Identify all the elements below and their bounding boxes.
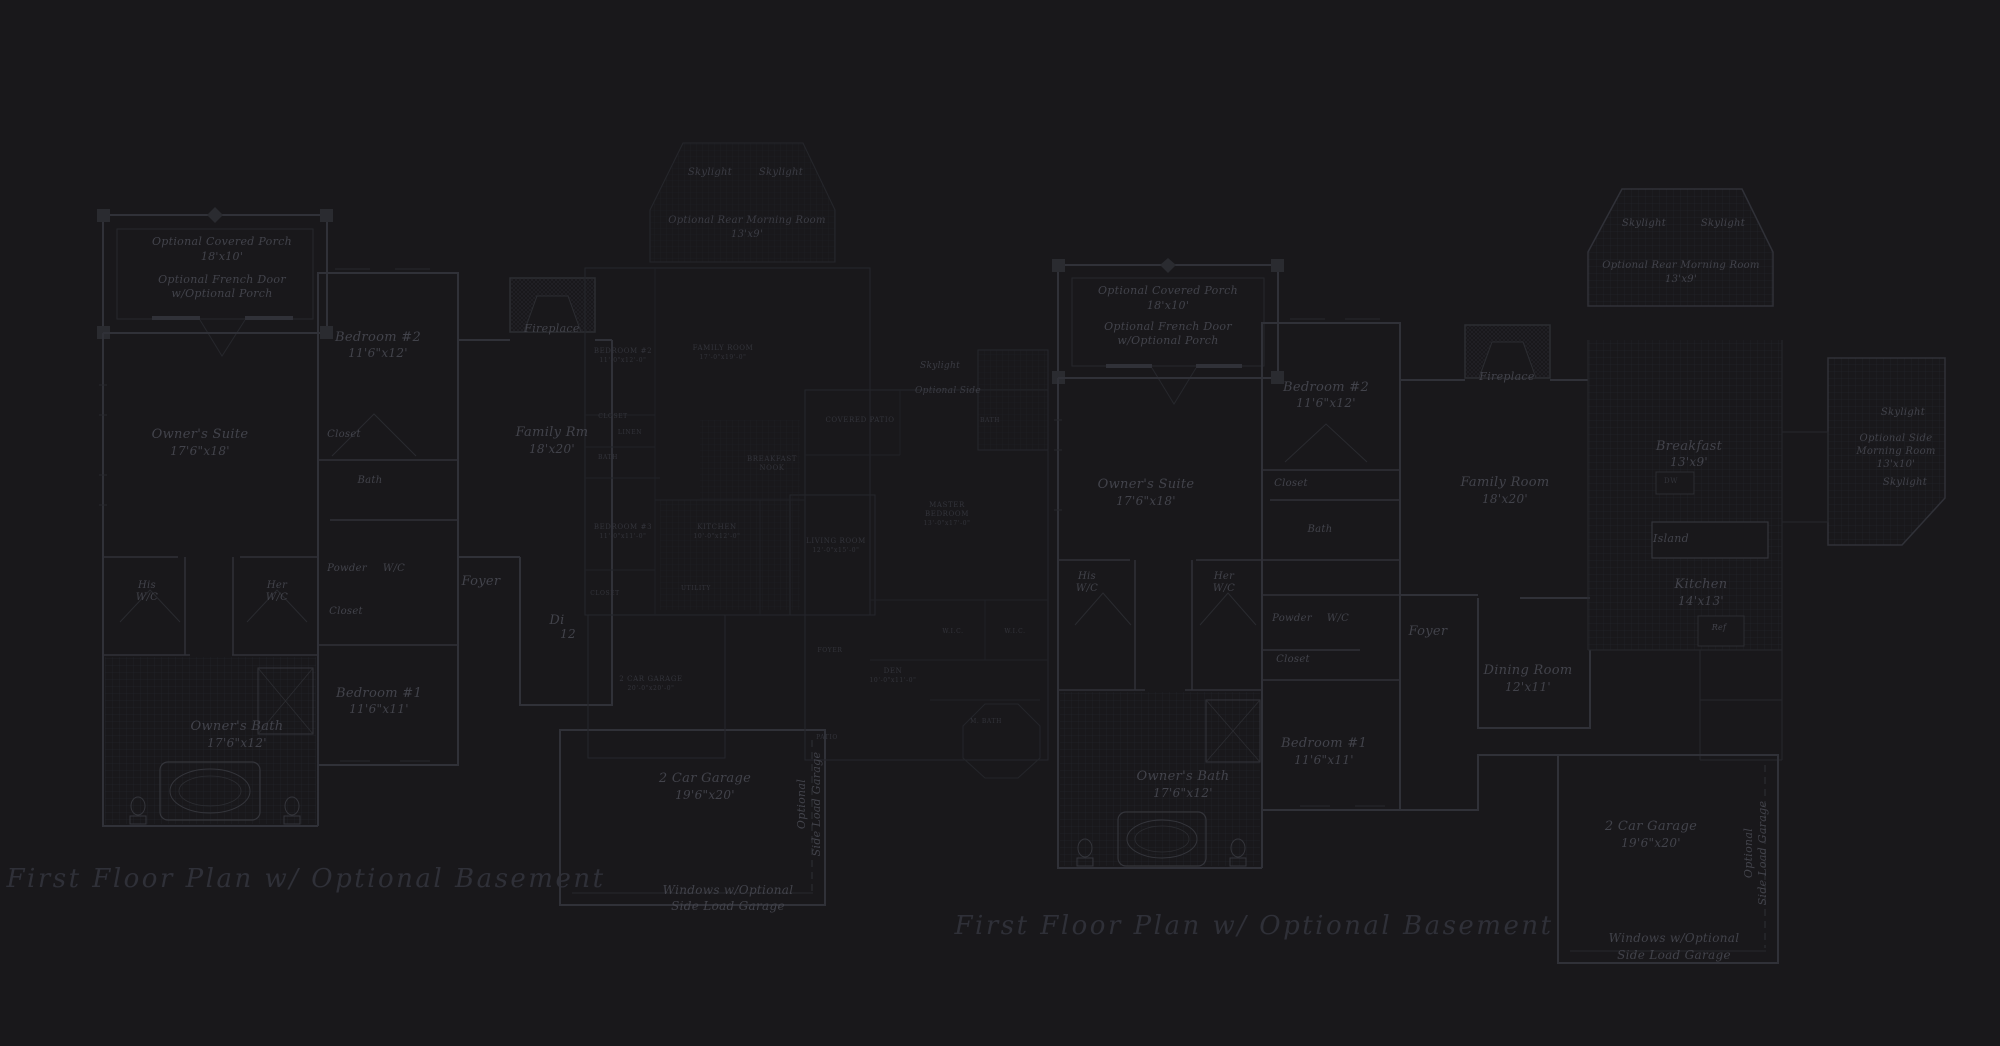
room-label: Side Load Garage <box>811 752 823 857</box>
room-label: Ref <box>1712 624 1727 632</box>
room-label: 18'x10' <box>201 251 243 263</box>
room-label: Optional Side <box>915 387 981 396</box>
room-label: 17'-0"x19'-0" <box>700 355 747 361</box>
room-label: W/C <box>1213 584 1235 595</box>
room-label: 17'6"x12' <box>207 737 267 750</box>
room-label: 2 Car Garage <box>659 772 751 786</box>
floor-plan-sheet: Optional Covered Porch18'x10'Optional Fr… <box>0 0 2000 1046</box>
room-label: Skylight <box>1881 408 1925 419</box>
room-label: Optional <box>796 779 808 829</box>
room-label: His <box>1078 572 1096 583</box>
room-label: 11'-0"x12'-0" <box>600 358 647 364</box>
room-label: Optional <box>1743 828 1755 878</box>
room-label: Optional French Door <box>1104 321 1232 333</box>
room-label: 19'6"x20' <box>675 789 735 802</box>
room-label: 11'-0"x11'-0" <box>600 534 647 540</box>
room-label: 11'6"x12' <box>348 347 408 360</box>
room-label: Her <box>267 581 287 592</box>
room-label: Optional Rear Morning Room <box>668 216 826 227</box>
room-label: Owner's Bath <box>191 720 284 734</box>
room-label: COVERED PATIO <box>825 417 894 424</box>
room-label: Kitchen <box>1675 578 1728 592</box>
room-label: 18'x10' <box>1147 300 1189 312</box>
room-label: Morning Room <box>1856 447 1935 458</box>
room-label: BEDROOM #2 <box>594 348 652 355</box>
room-label: BATH <box>980 418 1000 424</box>
room-label: Optional Side <box>1860 434 1933 445</box>
room-label: Bedroom #2 <box>1283 381 1369 395</box>
room-label: Closet <box>329 607 363 618</box>
room-label: Optional Covered Porch <box>152 236 292 248</box>
room-label: 18'x20' <box>529 443 575 456</box>
room-label: 18'x20' <box>1482 493 1528 506</box>
room-label: Side Load Garage <box>1617 949 1731 962</box>
room-label: CLOSET <box>598 414 628 420</box>
room-label: LINEN <box>618 430 642 436</box>
room-label: Foyer <box>462 575 501 589</box>
room-label: 17'6"x18' <box>170 445 230 458</box>
room-label: W/C <box>136 593 158 604</box>
room-label: Fireplace <box>524 323 579 335</box>
room-label: W/C <box>266 593 288 604</box>
room-label: Her <box>1214 572 1234 583</box>
room-label: Bath <box>1308 525 1333 536</box>
room-label: Owner's Suite <box>1098 478 1195 492</box>
room-label: Windows w/Optional <box>1609 932 1740 945</box>
room-label: W/C <box>1327 614 1349 625</box>
right-kitchen-zone <box>1588 340 1782 760</box>
room-label: Optional Covered Porch <box>1098 285 1238 297</box>
room-label: His <box>138 581 156 592</box>
room-label: DW <box>1664 478 1678 485</box>
room-label: CLOSET <box>590 591 620 597</box>
room-label: 17'6"x18' <box>1116 495 1176 508</box>
plan-title-left: First Floor Plan w/ Optional Basement <box>6 866 605 892</box>
room-label: BEDROOM <box>925 511 969 518</box>
room-label: FAMILY ROOM <box>693 345 754 352</box>
room-label: 13'x9' <box>1665 275 1697 286</box>
room-label: W/C <box>383 564 405 575</box>
room-label: Dining Room <box>1483 664 1572 678</box>
room-label: Island <box>1653 533 1689 545</box>
room-label: 12'-0"x15'-0" <box>813 548 860 554</box>
room-label: 13'-0"x17'-0" <box>924 521 971 527</box>
room-label: DEN <box>884 668 903 675</box>
room-label: W.I.C. <box>1004 629 1025 635</box>
room-label: Fireplace <box>1479 371 1534 383</box>
room-label: W.I.C. <box>942 629 963 635</box>
room-label: 10'-0"x11'-0" <box>870 678 917 684</box>
room-label: 10'-0"x12'-0" <box>694 534 741 540</box>
room-label: Powder <box>327 564 367 575</box>
room-label: Family Room <box>1460 476 1549 490</box>
room-label: 11'6"x11' <box>349 703 409 716</box>
room-label: Skylight <box>1701 219 1745 230</box>
room-label: Skylight <box>1622 219 1666 230</box>
room-label: Optional French Door <box>158 274 286 286</box>
room-label: w/Optional Porch <box>1117 335 1218 347</box>
room-label: Owner's Suite <box>152 428 249 442</box>
room-label: KITCHEN <box>697 524 737 531</box>
room-label: Windows w/Optional <box>663 884 794 897</box>
room-label: Side Load Garage <box>1757 801 1769 906</box>
room-label: Optional Rear Morning Room <box>1602 261 1760 272</box>
room-label: Bedroom #1 <box>1281 737 1367 751</box>
room-label: Skylight <box>1883 478 1927 489</box>
room-label: Di <box>549 614 564 628</box>
room-label: Bath <box>358 476 383 487</box>
room-label: 14'x13' <box>1678 595 1724 608</box>
room-label: Breakfast <box>1656 440 1722 454</box>
room-label: 13'x10' <box>1877 460 1916 471</box>
room-label: 20'-0"x20'-0" <box>628 686 675 692</box>
room-label: 2 Car Garage <box>1605 820 1697 834</box>
room-label: BATH <box>598 455 618 461</box>
room-label: Bedroom #2 <box>335 331 421 345</box>
room-label: 19'6"x20' <box>1621 837 1681 850</box>
room-label: Foyer <box>1409 625 1448 639</box>
room-label: Skylight <box>920 362 960 371</box>
room-label: MASTER <box>929 502 965 509</box>
room-label: 17'6"x12' <box>1153 787 1213 800</box>
room-label: Bedroom #1 <box>336 687 422 701</box>
room-label: 13'x9' <box>1670 456 1708 469</box>
room-label: W/C <box>1076 584 1098 595</box>
room-label: M. BATH <box>970 719 1002 725</box>
room-label: BREAKFAST <box>747 456 797 463</box>
room-label: UTILITY <box>681 586 711 592</box>
room-label: 13'x9' <box>731 230 763 241</box>
room-label: Skylight <box>759 168 803 179</box>
room-label: Closet <box>327 430 361 441</box>
room-label: BEDROOM #3 <box>594 524 652 531</box>
room-label: NOOK <box>759 465 784 472</box>
room-label: Closet <box>1276 655 1310 666</box>
plan-title-right: First Floor Plan w/ Optional Basement <box>954 913 1553 939</box>
room-label: LIVING ROOM <box>806 538 866 545</box>
room-label: Family Rm <box>516 426 589 440</box>
room-label: Skylight <box>688 168 732 179</box>
room-label: Side Load Garage <box>671 900 785 913</box>
room-label: Owner's Bath <box>1137 770 1230 784</box>
room-label: 2 CAR GARAGE <box>619 676 682 683</box>
room-label: 12 <box>560 628 576 641</box>
room-label: 11'6"x11' <box>1294 754 1354 767</box>
room-label: 12'x11' <box>1505 681 1551 694</box>
room-label: 11'6"x12' <box>1296 397 1356 410</box>
room-label: Closet <box>1274 479 1308 490</box>
room-label: Powder <box>1272 614 1312 625</box>
room-label: PATIO <box>816 735 838 741</box>
room-label: w/Optional Porch <box>171 288 272 300</box>
room-label: FOYER <box>818 648 843 654</box>
